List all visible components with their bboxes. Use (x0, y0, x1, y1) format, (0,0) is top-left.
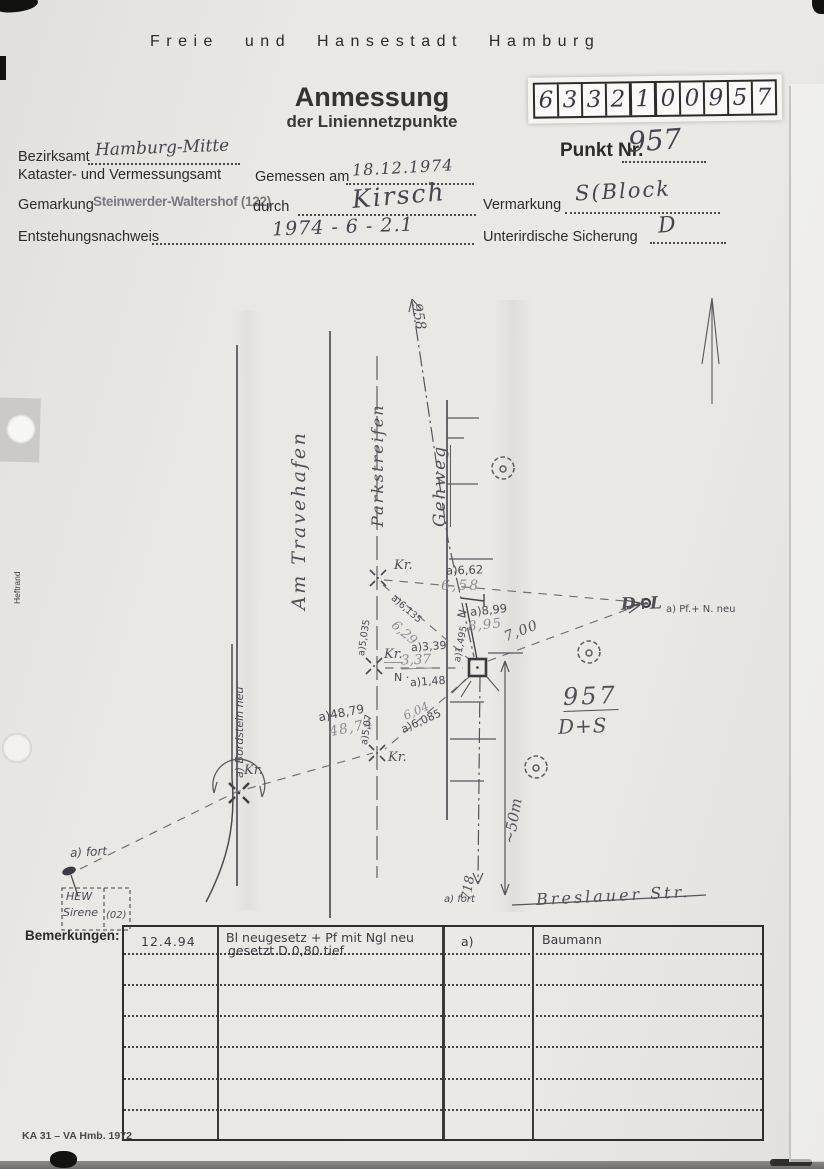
table-divider (217, 927, 219, 1139)
table-divider (532, 927, 534, 1139)
fort-left-note: a) fort (70, 844, 108, 860)
table-row-line (124, 1015, 762, 1017)
table-row-line (124, 1046, 762, 1048)
north-arrow-icon (702, 298, 719, 404)
kr-label-1: Kr. (394, 558, 413, 573)
street-label-parkstreifen: Parkstreifen (368, 404, 387, 528)
point-957-marking: D+S (558, 713, 608, 739)
dl-note: a) Pf.+ N. neu (666, 604, 735, 615)
table-row-line (124, 1078, 762, 1080)
bush-symbol (525, 756, 547, 778)
street-label-travehafen: Am Travehafen (288, 431, 310, 610)
kr-cross-1 (370, 570, 386, 586)
table-row-line (124, 984, 762, 986)
street-label-gehweg: Gehweg (430, 445, 451, 527)
hew-label-3: (02) (106, 910, 127, 921)
measure-337-old: 3,37 (401, 651, 432, 669)
hew-label-2: Sirene (63, 906, 98, 919)
hew-label-1: HEW (66, 890, 92, 903)
dimension-50m (488, 653, 523, 895)
scanned-form-page: Heftrand Freie und Hansestadt Hamburg An… (0, 0, 824, 1169)
remarks-table: 12.4.94 Bl neugesetz + Pf mit Ngl neu ge… (122, 925, 764, 1141)
remark-ref: a) (461, 934, 474, 949)
kr-label-3: Kr. (388, 750, 407, 765)
curb-line-bordstein (206, 644, 233, 902)
bush-symbol (578, 641, 600, 663)
table-row-line (124, 953, 762, 955)
remark-text-line2: gesetzt D 0,80 tief (228, 943, 344, 958)
remarks-label: Bemerkungen: (25, 928, 120, 943)
form-code: KA 31 – VA Hmb. 1972 (22, 1130, 132, 1142)
kr-cross-2 (366, 658, 382, 674)
point-957-label: 957 (563, 681, 619, 712)
kr-label-4: Kr. (244, 763, 263, 778)
dl-label: D+L (621, 593, 663, 614)
remark-date: 12.4.94 (141, 934, 196, 949)
network-line-to-718 (478, 677, 480, 882)
measure-148: a)1,48 (410, 674, 446, 689)
point-957-symbol (452, 659, 499, 697)
measure-662-old: 6,58 (441, 578, 480, 594)
remark-name: Baumann (542, 932, 602, 947)
nail-label-left: N · (394, 671, 409, 684)
measure-662-new: a)6,62 (446, 562, 484, 577)
bush-symbol (492, 457, 514, 479)
fort-bottom-note: a) fort (444, 894, 475, 905)
line-kr1-to-dl (384, 580, 636, 602)
table-row-line (124, 1109, 762, 1111)
table-divider (442, 927, 445, 1139)
